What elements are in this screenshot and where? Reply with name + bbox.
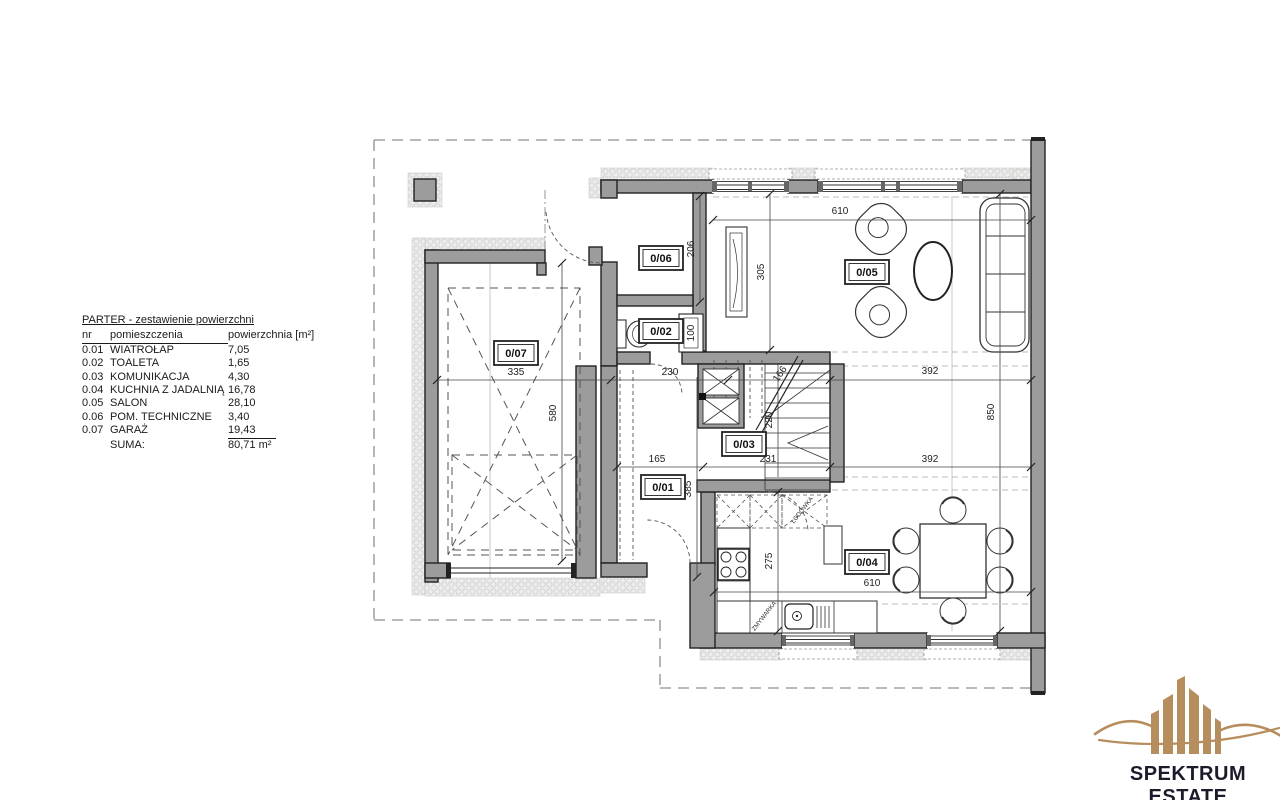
dim-392-lower: 392 (922, 454, 939, 465)
table-row: 0.03 KOMUNIKACJA 4,30 (82, 371, 314, 384)
window-sill (815, 169, 965, 179)
room-label-0-03: 0/03 (722, 432, 766, 456)
table-row: 0.05 SALON 28,10 (82, 397, 314, 410)
dim-275: 275 (764, 552, 775, 569)
dim-610-bottom: 610 (864, 578, 881, 589)
window-bottom-left (782, 633, 854, 648)
dim-206: 206 (686, 240, 697, 257)
dim-335: 335 (508, 367, 525, 378)
sofa (980, 198, 1029, 352)
room-nr: 0.05 (82, 397, 110, 410)
agency-logo: SPEKTRUM ESTATE BIURO NIERUCHOMOŚCI (1093, 670, 1280, 800)
room-name: POM. TECHNICZNE (110, 411, 228, 424)
room-name: GARAŻ (110, 424, 228, 438)
stove (718, 549, 749, 580)
table-suma-row: SUMA: 80,71 m² (82, 439, 314, 452)
dining-chair (940, 497, 966, 523)
front-door-arc (647, 520, 690, 563)
coffee-table (914, 242, 952, 300)
svg-text:0/06: 0/06 (650, 253, 671, 265)
dim-166: 166 (771, 364, 790, 384)
col-header-nr: nr (82, 329, 110, 342)
room-nr: 0.03 (82, 371, 110, 384)
garage-door (446, 563, 576, 578)
room-area: 4,30 (228, 371, 298, 384)
col-header-name: pomieszczenia (110, 329, 183, 342)
svg-text:0/02: 0/02 (650, 326, 671, 338)
table-row: 0.06 POM. TECHNICZNE 3,40 (82, 411, 314, 424)
armchair (848, 196, 913, 261)
room-label-0-02: 0/02 (639, 319, 683, 343)
dining-chair (893, 567, 919, 593)
room-name: TOALETA (110, 357, 228, 370)
room-area: 1,65 (228, 357, 298, 370)
fridge-label: LODÓWKA (790, 495, 816, 525)
svg-text:0/07: 0/07 (505, 348, 526, 360)
svg-text:0/01: 0/01 (652, 482, 673, 494)
table-header: nr pomieszczenia powierzchnia [m²] (82, 329, 314, 343)
table-row: 0.04 KUCHNIA Z JADALNIĄ 16,78 (82, 384, 314, 397)
window-sill (924, 649, 1000, 659)
window-sill (709, 169, 792, 179)
dim-392-upper: 392 (922, 366, 939, 377)
dim-220: 220 (764, 411, 775, 428)
room-label-0-01: 0/01 (641, 475, 685, 499)
kitchen-wall-cabinets: LODÓWKA (717, 495, 827, 528)
tall-cabinet (824, 526, 842, 564)
svg-text:0/03: 0/03 (733, 439, 754, 451)
logo-skyline-icon (1093, 670, 1280, 758)
garage-car-outline (448, 288, 580, 555)
armchair (848, 279, 913, 344)
room-name: KUCHNIA Z JADALNIĄ (110, 384, 228, 397)
table-title: PARTER - zestawienie powierzchni (82, 314, 314, 327)
dimension-chain-mid: 165 231 392 (613, 454, 1035, 471)
window-bottom-right (927, 633, 997, 648)
room-name: SALON (110, 397, 228, 410)
radiator-cabinet (726, 227, 747, 317)
room-area: 28,10 (228, 397, 298, 410)
window-top-right (818, 180, 962, 193)
dim-305: 305 (756, 263, 767, 280)
room-nr: 0.06 (82, 411, 110, 424)
dining-chair (940, 598, 966, 624)
room-nr: 0.04 (82, 384, 110, 397)
dining-chair (893, 528, 919, 554)
table-row: 0.07 GARAŻ 19,43 (82, 424, 314, 438)
floorplan-page: 100 (0, 0, 1280, 800)
svg-text:0/04: 0/04 (856, 557, 878, 569)
room-label-0-05: 0/05 (845, 260, 889, 284)
logo-title: SPEKTRUM ESTATE (1093, 763, 1280, 800)
dim-610-top: 610 (832, 206, 849, 217)
dim-580: 580 (548, 404, 559, 421)
svg-text:0/05: 0/05 (856, 267, 877, 279)
room-area: 7,05 (228, 344, 298, 357)
room-nr: 0.02 (82, 357, 110, 370)
room-label-0-04: 0/04 (845, 550, 889, 574)
room-nr: 0.01 (82, 344, 110, 357)
room-label-0-06: 0/06 (639, 246, 683, 270)
room-name: WIATROŁAP (110, 344, 228, 357)
room-area: 3,40 (228, 411, 298, 424)
suma-value: 80,71 m² (228, 439, 298, 452)
suma-label: SUMA: (110, 439, 228, 452)
dim-165: 165 (649, 454, 666, 465)
dining-table (920, 524, 986, 598)
room-schedule-table: PARTER - zestawienie powierzchni nr pomi… (82, 314, 314, 452)
dim-850: 850 (986, 403, 997, 420)
table-row: 0.01 WIATROŁAP 7,05 (82, 344, 314, 357)
window-sill (779, 649, 857, 659)
room-nr: 0.07 (82, 424, 110, 438)
dim-100: 100 (686, 324, 697, 341)
room-label-0-07: 0/07 (494, 341, 538, 365)
room-area: 19,43 (228, 424, 276, 438)
wardrobe-dashed (620, 370, 633, 560)
table-row: 0.02 TOALETA 1,65 (82, 357, 314, 370)
room-area: 16,78 (228, 384, 298, 397)
room-name: KOMUNIKACJA (110, 371, 228, 384)
window-top-left (712, 180, 789, 193)
col-header-area: powierzchnia [m²] (228, 329, 314, 343)
dim-230: 230 (662, 367, 679, 378)
